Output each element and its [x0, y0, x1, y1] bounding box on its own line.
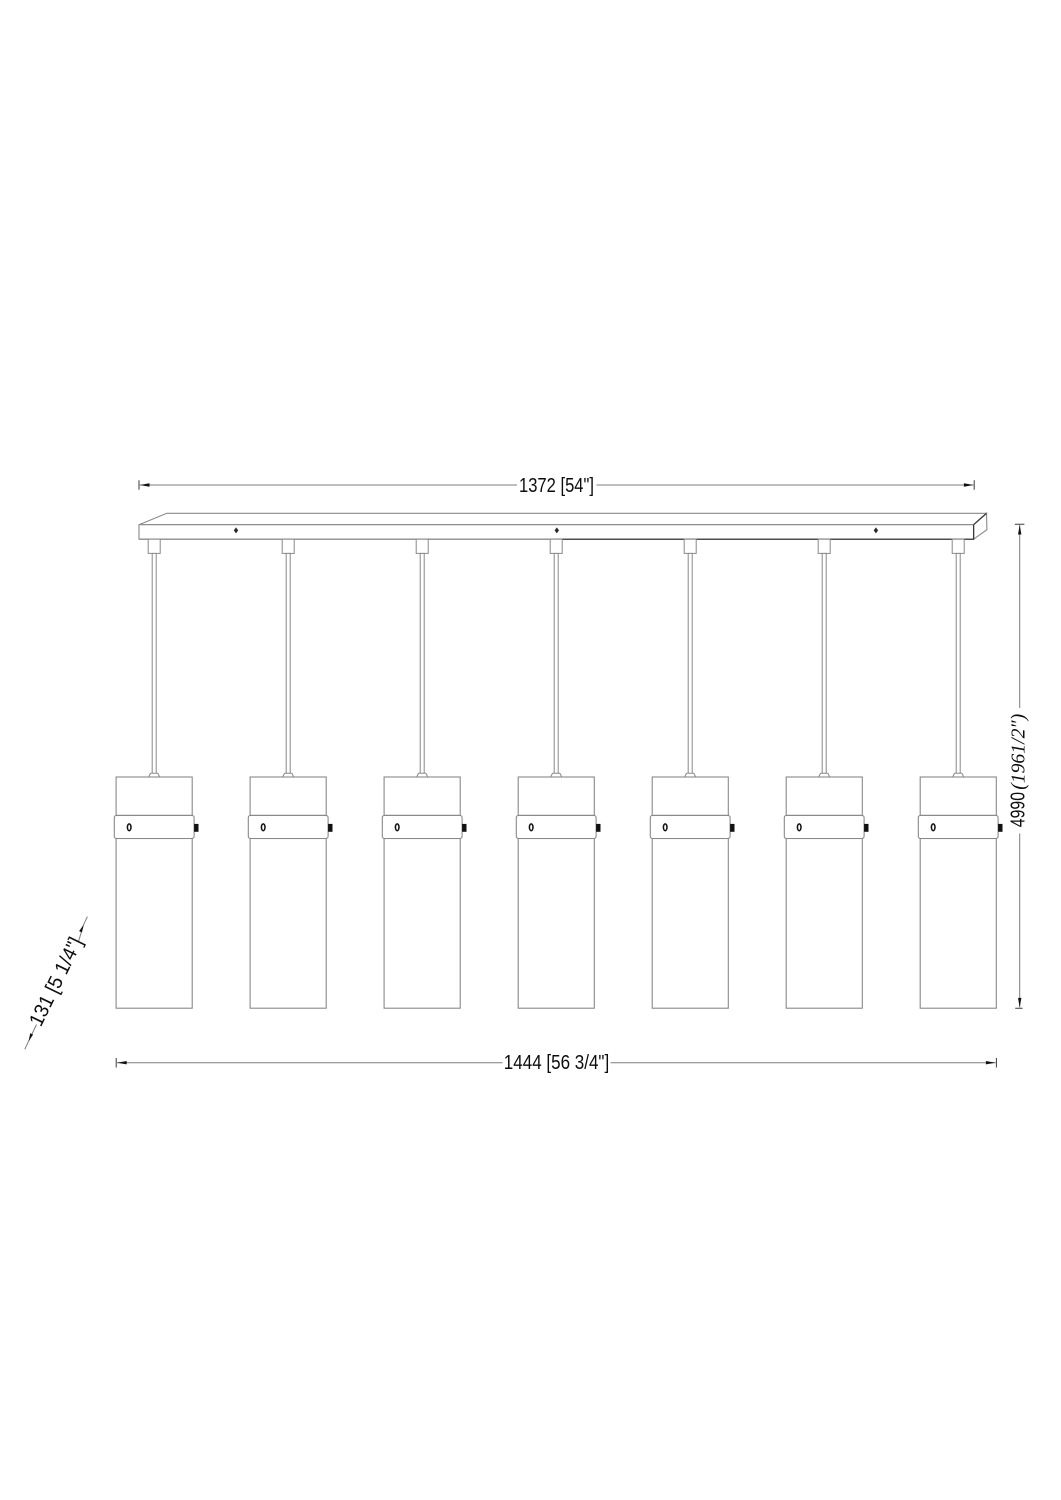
- svg-text:1444 [56 3/4"]: 1444 [56 3/4"]: [504, 1052, 609, 1074]
- svg-text:1372 [54"]: 1372 [54"]: [519, 475, 594, 497]
- svg-text:4990: 4990: [1008, 792, 1030, 827]
- svg-text:(1961/2″): (1961/2″): [1008, 714, 1030, 790]
